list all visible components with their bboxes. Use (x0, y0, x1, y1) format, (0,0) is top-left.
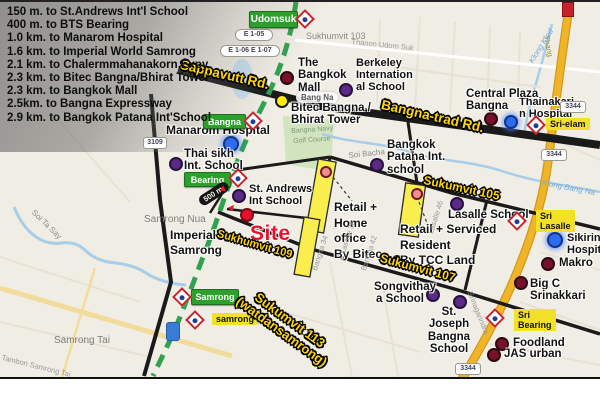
distance-item-2: 400 m. to BTS Bearing (7, 19, 287, 32)
distance-item-5: 2.1 km. to Chalermmahanakorn Expy. (7, 59, 287, 72)
distance-item-6: 2.3 km. to Bitec Bangna/Bhirat Tower (7, 72, 287, 85)
distance-item-3: 1.0 km. to Manarom Hospital (7, 32, 287, 45)
red-flag-marker (562, 2, 574, 17)
map-area: SiteManarom HospitalThainakarin Hospital… (0, 2, 600, 377)
distance-item-9: 2.9 km. to Bangkok Patana Int'School (7, 112, 287, 125)
distance-item-8: 2.5km. to Bangna Expressway (7, 98, 287, 111)
legend-bar: SiteHospitalOffice Building / transactio… (0, 377, 600, 404)
distance-list: 150 m. to St.Andrews Int'l School400 m. … (7, 6, 287, 125)
distance-item-4: 1.6 km. to Imperial World Samrong (7, 46, 287, 59)
distance-item-1: 150 m. to St.Andrews Int'l School (7, 6, 287, 19)
annotated-map: SiteManarom HospitalThainakarin Hospital… (0, 0, 600, 404)
pier-icon (166, 322, 180, 341)
distance-item-7: 2.3 km. to Bangkok Mall (7, 85, 287, 98)
